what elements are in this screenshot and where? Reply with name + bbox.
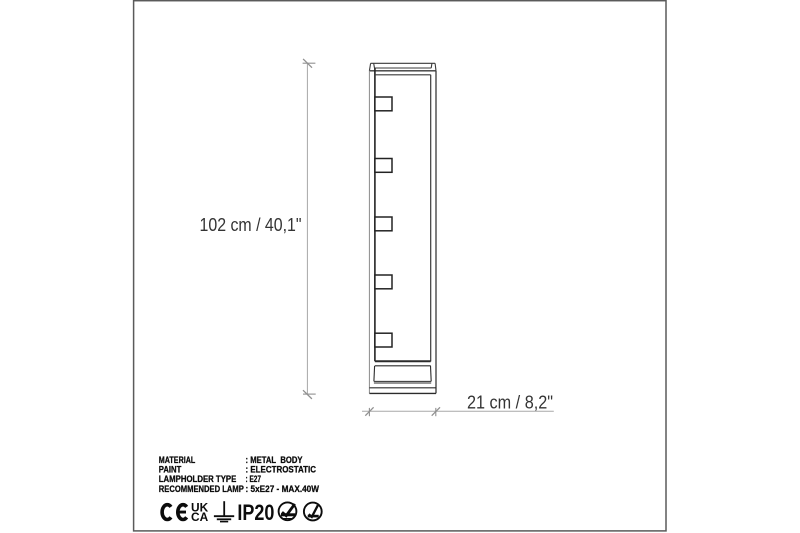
svg-text:MATERIAL: MATERIAL (159, 455, 196, 465)
svg-text:: E27: : E27 (246, 474, 262, 484)
svg-text:LAMPHOLDER TYPE: LAMPHOLDER TYPE (159, 474, 237, 484)
svg-text:102 cm / 40,1": 102 cm / 40,1" (200, 215, 302, 235)
svg-text:: METAL BODY: : METAL BODY (246, 455, 303, 465)
svg-text:CA: CA (191, 510, 209, 524)
svg-text:RECOMMENDED LAMP: RECOMMENDED LAMP (159, 484, 244, 494)
svg-text:21 cm / 8,2": 21 cm / 8,2" (467, 393, 553, 413)
svg-text:IP20: IP20 (237, 500, 274, 525)
svg-text:: 5xE27 - MAX.40W: : 5xE27 - MAX.40W (246, 484, 320, 494)
svg-text:: ELECTROSTATIC: : ELECTROSTATIC (246, 465, 317, 475)
svg-text:PAINT: PAINT (159, 465, 182, 475)
